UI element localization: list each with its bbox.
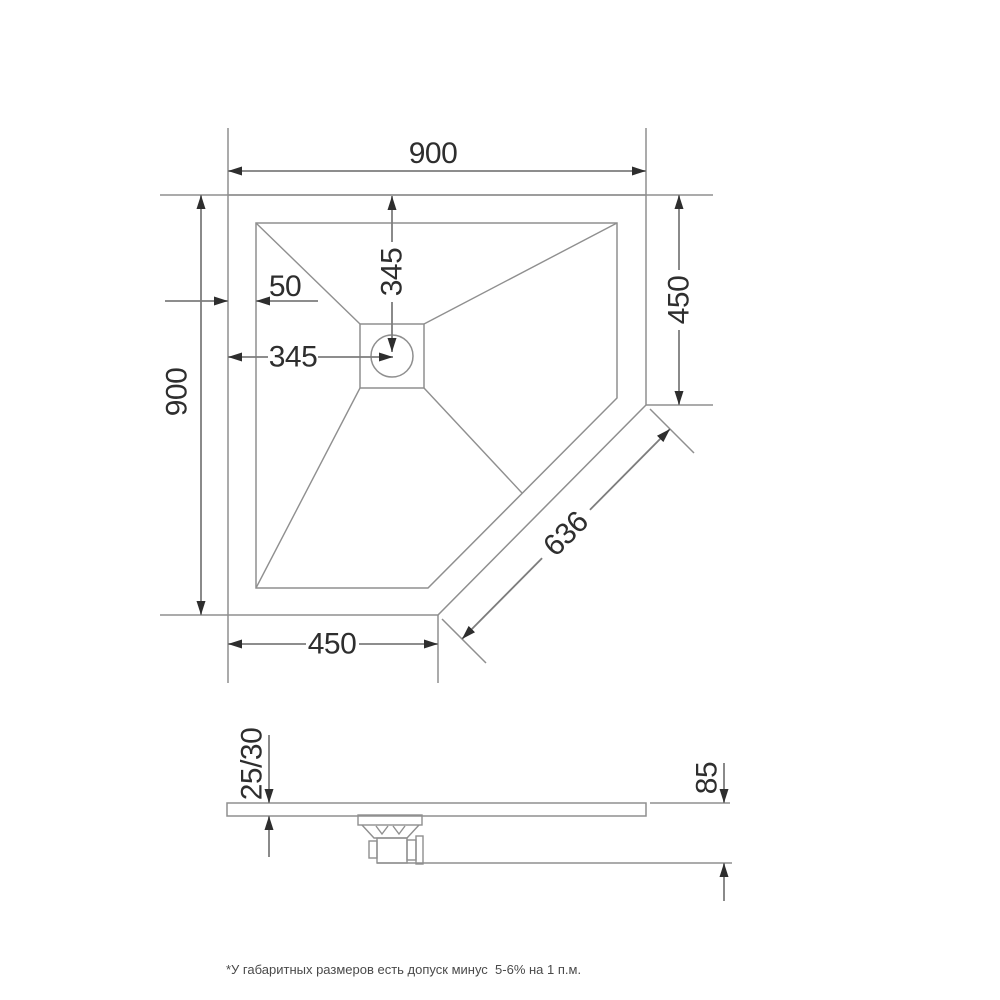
side-view: 25/30 85 — [227, 728, 732, 901]
drawing-canvas: 900 900 50 345 345 — [0, 0, 1000, 1000]
dim-label-left-900: 900 — [161, 368, 194, 417]
dim-bevel-edge: 636 — [462, 429, 670, 639]
drain-trap-profile — [358, 815, 423, 864]
technical-drawing-page: 900 900 50 345 345 — [0, 0, 1000, 1000]
dim-label-25-30: 25/30 — [236, 728, 269, 801]
dim-drain-offset-y: 345 — [376, 196, 409, 352]
tray-slab-profile — [227, 803, 646, 816]
dim-edge-inset: 50 — [165, 270, 318, 303]
dim-label-right-450: 450 — [663, 276, 696, 325]
dim-total-height: 85 — [691, 762, 725, 901]
extension-lines — [160, 128, 713, 683]
dim-left-height: 900 — [161, 195, 202, 615]
dim-label-50: 50 — [269, 270, 301, 303]
dim-label-85: 85 — [691, 762, 724, 794]
dim-label-bottom-450: 450 — [308, 628, 357, 661]
tray-outer-outline — [228, 195, 646, 615]
dim-bottom-edge: 450 — [228, 628, 438, 661]
dim-slab-thickness: 25/30 — [236, 728, 270, 857]
dim-label-top-900: 900 — [409, 137, 458, 170]
plan-view: 900 900 50 345 345 — [160, 128, 713, 683]
tolerance-footnote: *У габаритных размеров есть допуск минус… — [226, 962, 581, 977]
dim-top-width: 900 — [228, 137, 646, 171]
dim-right-edge: 450 — [663, 195, 696, 405]
dim-drain-offset-x: 345 — [228, 341, 393, 374]
dim-label-345-horizontal: 345 — [269, 341, 318, 374]
dim-label-345-vertical: 345 — [376, 248, 409, 297]
